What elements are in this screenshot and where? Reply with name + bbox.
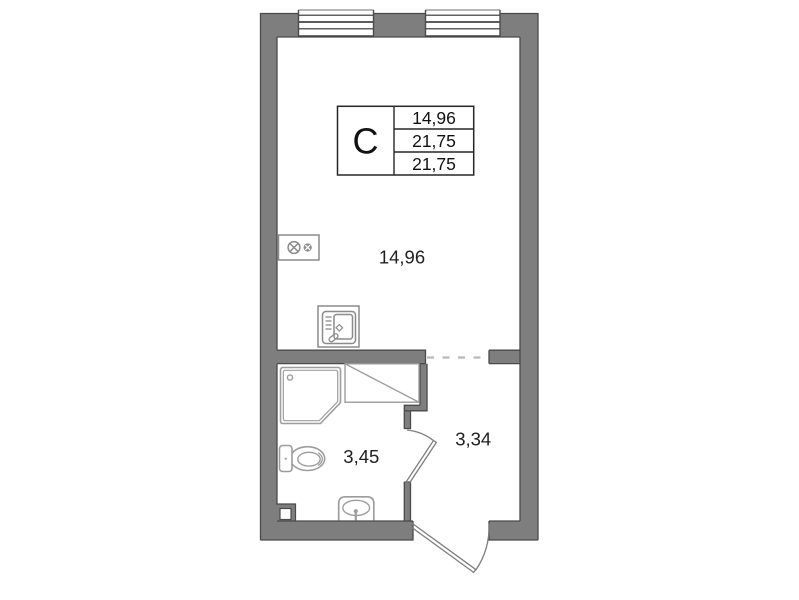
svg-text:14,96: 14,96	[379, 247, 425, 268]
svg-text:21,75: 21,75	[412, 154, 456, 174]
svg-text:3,34: 3,34	[455, 428, 491, 449]
svg-text:21,75: 21,75	[412, 131, 456, 151]
svg-text:14,96: 14,96	[412, 108, 456, 128]
svg-text:3,45: 3,45	[343, 446, 379, 467]
svg-text:С: С	[353, 121, 379, 162]
